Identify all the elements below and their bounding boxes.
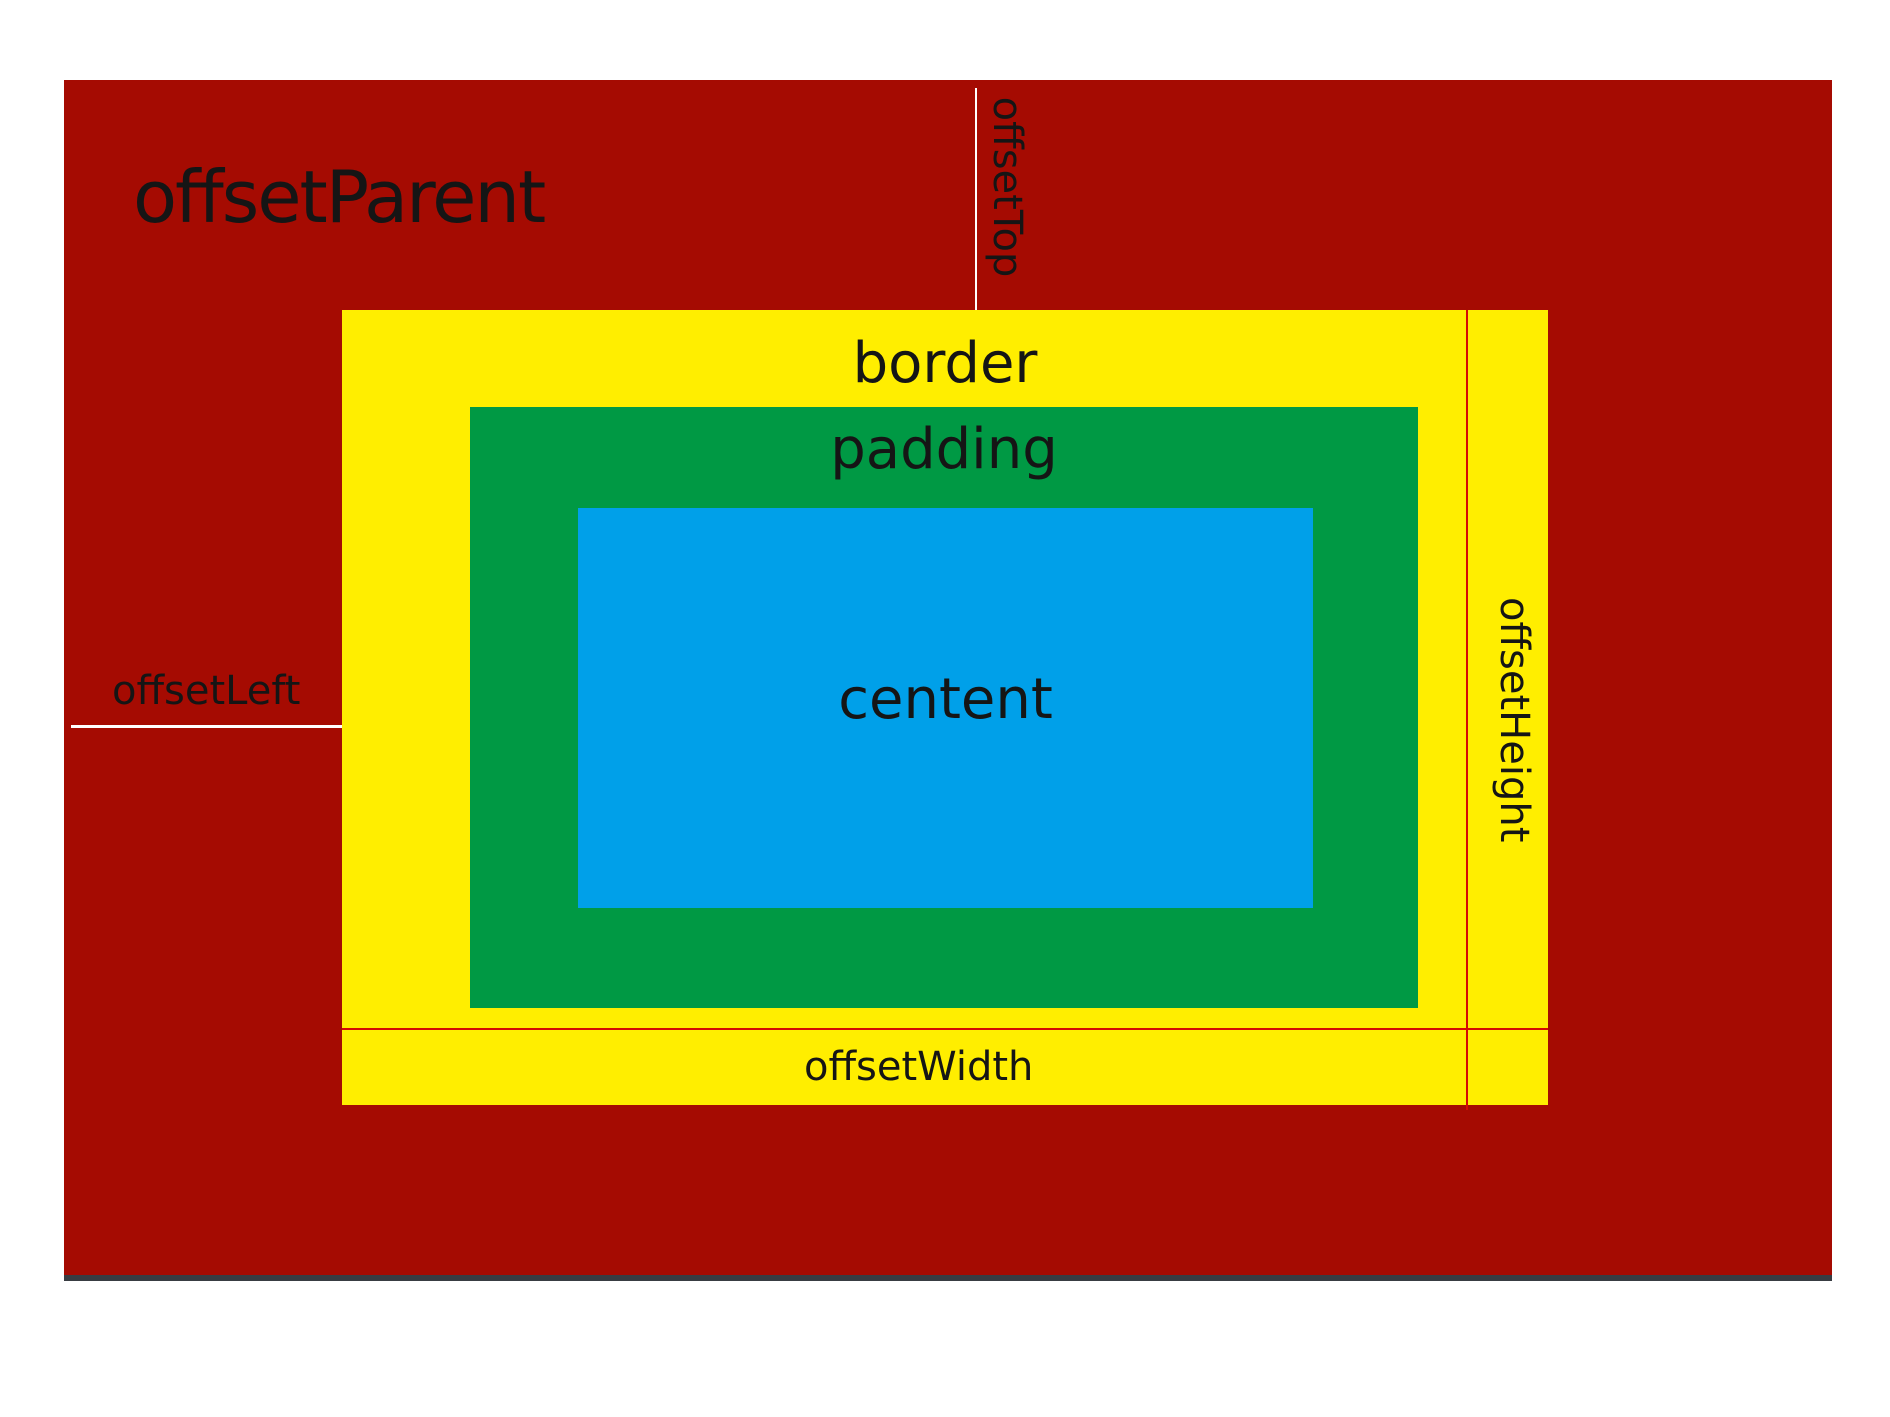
offset-top-marker-line (975, 88, 977, 310)
padding-label: padding (470, 418, 1418, 482)
offset-height-label: offsetHeight (1491, 597, 1537, 841)
offset-parent-label: offsetParent (133, 156, 544, 239)
offset-left-marker-line (71, 725, 342, 728)
offset-left-label: offsetLeft (112, 668, 300, 714)
offset-width-marker-line (342, 1028, 1548, 1030)
offset-width-label: offsetWidth (804, 1044, 1033, 1090)
offset-height-marker-line (1466, 310, 1468, 1110)
border-label: border (342, 332, 1548, 396)
offset-top-label: offsetTop (984, 94, 1030, 280)
offset-diagram: offsetParent border padding centent offs… (0, 0, 1890, 1417)
content-label: centent (578, 668, 1313, 732)
